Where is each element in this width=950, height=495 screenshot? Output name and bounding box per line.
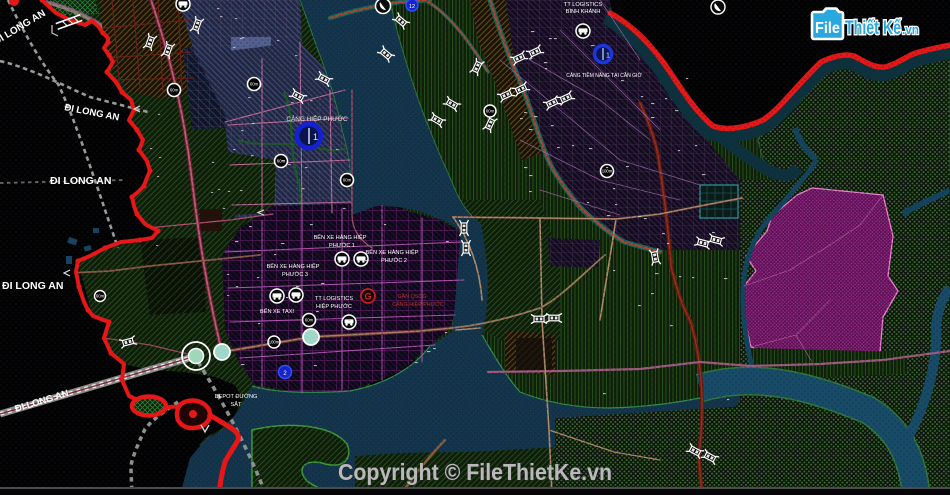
svg-text:60m: 60m — [486, 109, 495, 114]
svg-text:BẾN XE HÀNG HIỆP: BẾN XE HÀNG HIỆP — [314, 233, 367, 241]
svg-text:DEPOT ĐƯỜNG: DEPOT ĐƯỜNG — [215, 393, 258, 400]
svg-text:60m: 60m — [250, 82, 259, 87]
svg-text:1: 1 — [313, 132, 318, 142]
svg-text:.vn: .vn — [902, 22, 919, 37]
svg-text:PHƯỚC 1: PHƯỚC 1 — [329, 242, 355, 249]
svg-text:PHƯỚC 3: PHƯỚC 3 — [282, 271, 308, 278]
svg-text:CẢNG HIỆP PHƯỚC: CẢNG HIỆP PHƯỚC — [286, 114, 348, 123]
svg-text:12: 12 — [409, 4, 415, 10]
svg-text:60m: 60m — [96, 294, 105, 299]
svg-text:60m: 60m — [305, 318, 314, 323]
svg-text:G: G — [364, 292, 371, 302]
svg-text:60m: 60m — [343, 178, 352, 183]
svg-text:100m: 100m — [269, 340, 280, 345]
svg-text:TT LOGISTICS: TT LOGISTICS — [564, 2, 602, 8]
svg-text:60m: 60m — [170, 88, 179, 93]
svg-text:GẦN QSCG: GẦN QSCG — [397, 293, 426, 300]
svg-text:File: File — [815, 20, 840, 37]
svg-text:SẮT: SẮT — [231, 400, 242, 408]
svg-text:BẾN XE HÀNG HIỆP: BẾN XE HÀNG HIỆP — [267, 262, 320, 270]
svg-text:ĐI LONG AN: ĐI LONG AN — [50, 175, 111, 187]
svg-text:HIỆP PHƯỚC: HIỆP PHƯỚC — [316, 302, 352, 310]
svg-text:PHƯỚC 2: PHƯỚC 2 — [381, 257, 407, 264]
svg-text:TT LOGISTICS: TT LOGISTICS — [315, 296, 353, 302]
svg-text:BẾN XE HÀNG HIỆP: BẾN XE HÀNG HIỆP — [366, 248, 419, 256]
svg-text:CẢNG TIỀM NĂNG TẠI CẦN GIỜ: CẢNG TIỀM NĂNG TẠI CẦN GIỜ — [566, 72, 642, 79]
svg-text:CẢNG HIỆP PHƯỚC: CẢNG HIỆP PHƯỚC — [392, 300, 444, 308]
svg-text:BẾN XE TAXI: BẾN XE TAXI — [260, 308, 294, 315]
svg-text:Thiết Kế: Thiết Kế — [845, 18, 901, 39]
svg-text:BÌNH KHÁNH: BÌNH KHÁNH — [566, 8, 601, 15]
svg-text:Copyright © FileThietKe.vn: Copyright © FileThietKe.vn — [338, 459, 612, 485]
svg-text:100m: 100m — [602, 169, 613, 174]
svg-text:ĐI LONG AN: ĐI LONG AN — [2, 280, 63, 292]
svg-text:1: 1 — [606, 53, 610, 60]
